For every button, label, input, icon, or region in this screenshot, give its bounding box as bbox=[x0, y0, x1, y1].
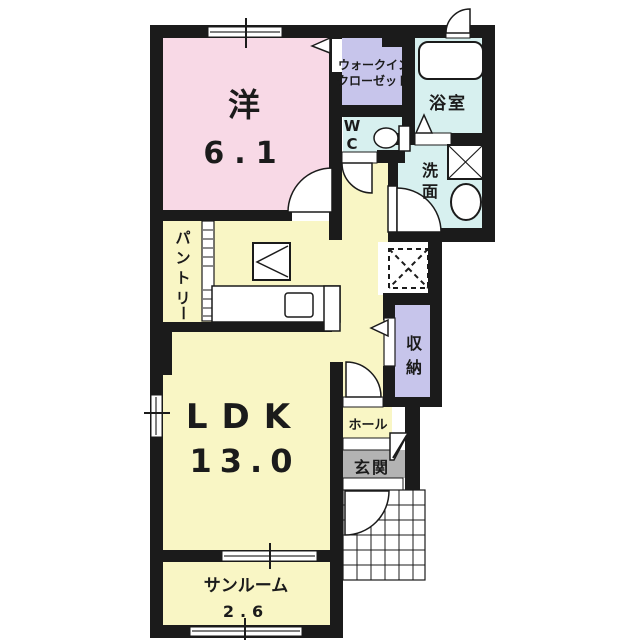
kitchen-counter bbox=[212, 286, 340, 322]
pantry-label-char5: ー bbox=[174, 305, 192, 320]
storage-label-char1: 収 bbox=[406, 334, 423, 353]
wc-threshold bbox=[342, 152, 377, 163]
walkin-closet-label-line2: クローゼット bbox=[337, 73, 409, 88]
wall-storage-top bbox=[383, 293, 442, 305]
floor-plan-image: 洋 6.1 ウォークイン クローゼット 浴室 W C 洗 面 パ ン ト リ ー… bbox=[0, 0, 640, 640]
fridge-space-icon bbox=[389, 249, 428, 288]
bathroom-label: 浴室 bbox=[429, 93, 467, 114]
pantry-label-char2: ン bbox=[175, 249, 190, 267]
walkin-closet-label-line1: ウォークイン bbox=[338, 58, 410, 72]
pantry-label-char1: パ bbox=[175, 229, 190, 247]
bath-door-threshold bbox=[415, 133, 451, 145]
floor-plan-svg: 洋 6.1 ウォークイン クローゼット 浴室 W C 洗 面 パ ン ト リ ー… bbox=[0, 0, 640, 640]
wall-bath-washroom-right bbox=[451, 133, 483, 145]
wall-ldk-left-stub bbox=[160, 332, 172, 375]
wall-closet-tab bbox=[382, 37, 404, 47]
pantry-label-char3: ト bbox=[175, 269, 190, 287]
pantry-label-char4: リ bbox=[175, 289, 190, 307]
wall-storage-left-lower bbox=[383, 366, 395, 397]
ldk-area-label: 13.0 bbox=[190, 442, 301, 480]
wall-closet-bottom bbox=[329, 105, 407, 117]
wall-ldk-right bbox=[330, 362, 343, 638]
ldk-label: LDK bbox=[186, 397, 304, 437]
wall-wc-bottom-right bbox=[377, 150, 405, 163]
sunroom-area-label: 2.6 bbox=[223, 602, 269, 621]
toilet-tank-icon bbox=[399, 126, 410, 151]
washroom-label-char1: 洗 bbox=[422, 161, 438, 180]
wc-label-char1: W bbox=[344, 117, 361, 135]
washroom-door-leaf bbox=[388, 186, 397, 232]
toilet-bowl-icon bbox=[374, 128, 398, 148]
wall-exterior-top bbox=[150, 25, 495, 38]
entrance-step bbox=[343, 438, 392, 450]
walkin-closet-floor bbox=[338, 37, 402, 107]
entrance-threshold bbox=[343, 478, 403, 490]
wc-label-char2: C bbox=[346, 135, 357, 153]
bedroom-area-label: 6.1 bbox=[203, 136, 286, 171]
bedroom-label: 洋 bbox=[228, 86, 260, 124]
wall-washroom-left bbox=[388, 163, 398, 188]
storage-label-char2: 納 bbox=[406, 358, 422, 377]
hall-threshold bbox=[343, 397, 383, 407]
entrance-label: 玄関 bbox=[354, 458, 390, 477]
wall-pantry-bottom-counter-front bbox=[150, 322, 332, 332]
wall-storage-right bbox=[430, 305, 442, 407]
window-bath-vent-swing bbox=[446, 9, 470, 33]
bathtub-icon bbox=[419, 42, 483, 79]
wall-bedroom-bottom bbox=[150, 210, 292, 221]
hall-label: ホール bbox=[348, 418, 387, 433]
kitchen-sink-icon bbox=[285, 293, 313, 317]
sunroom-label: サンルーム bbox=[204, 576, 289, 596]
wash-basin-icon bbox=[451, 184, 481, 220]
wall-entrance-right bbox=[405, 403, 420, 490]
washroom-label-char2: 面 bbox=[422, 182, 438, 201]
kitchen-counter-return bbox=[324, 286, 340, 331]
